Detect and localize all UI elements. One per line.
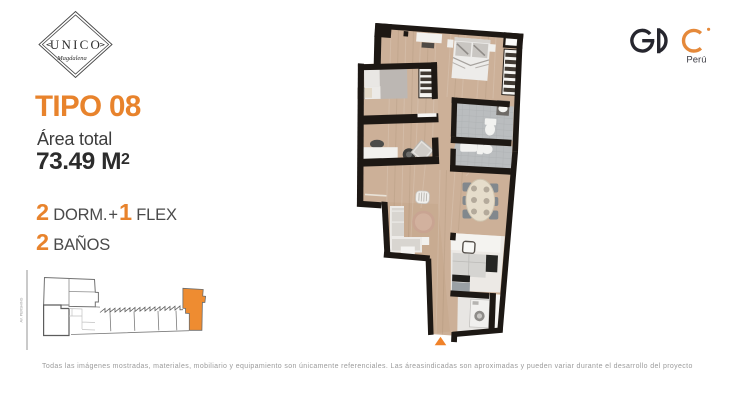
svg-text:AV. PERSHING: AV. PERSHING xyxy=(20,297,24,322)
